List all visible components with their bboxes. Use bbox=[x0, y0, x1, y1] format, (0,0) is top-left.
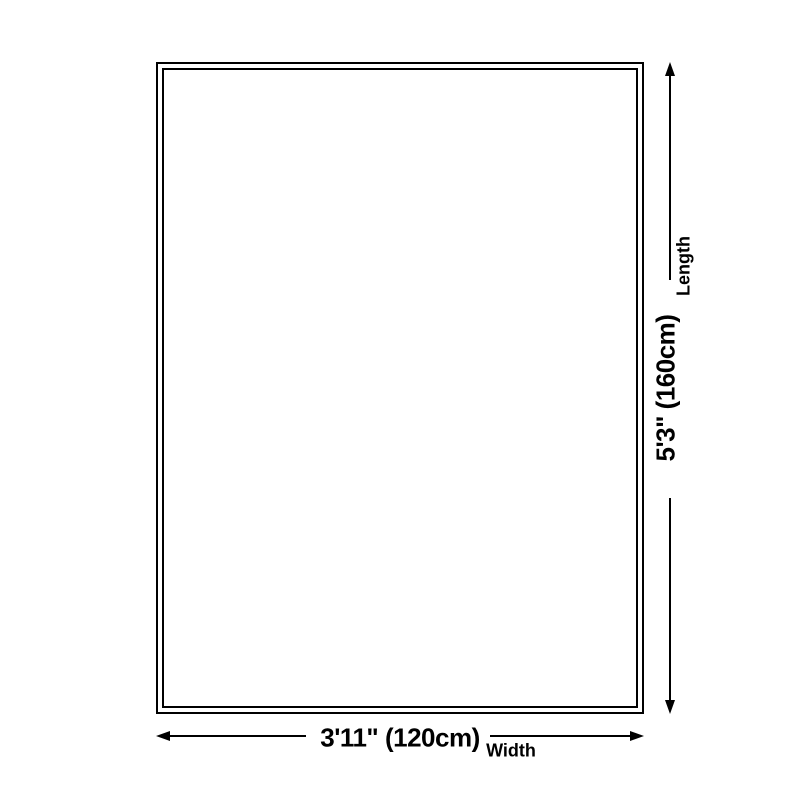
arrow-left-icon bbox=[156, 731, 170, 741]
length-dimension-line-bottom bbox=[669, 498, 671, 700]
width-dimension-line-left bbox=[170, 735, 306, 737]
length-axis-label: Length bbox=[674, 236, 695, 296]
arrow-right-icon bbox=[630, 731, 644, 741]
rug-outline bbox=[156, 62, 644, 714]
width-value-label: 3'11" (120cm) bbox=[320, 723, 479, 754]
rug-outline-inner bbox=[162, 68, 638, 708]
width-axis-label: Width bbox=[486, 741, 536, 762]
size-diagram: Length 5'3" (160cm) 3'11" (120cm) Width bbox=[0, 0, 800, 800]
length-value-label: 5'3" (160cm) bbox=[651, 315, 682, 462]
arrow-up-icon bbox=[665, 62, 675, 76]
width-dimension-line-right bbox=[490, 735, 630, 737]
length-dimension-line-top bbox=[669, 76, 671, 280]
arrow-down-icon bbox=[665, 700, 675, 714]
